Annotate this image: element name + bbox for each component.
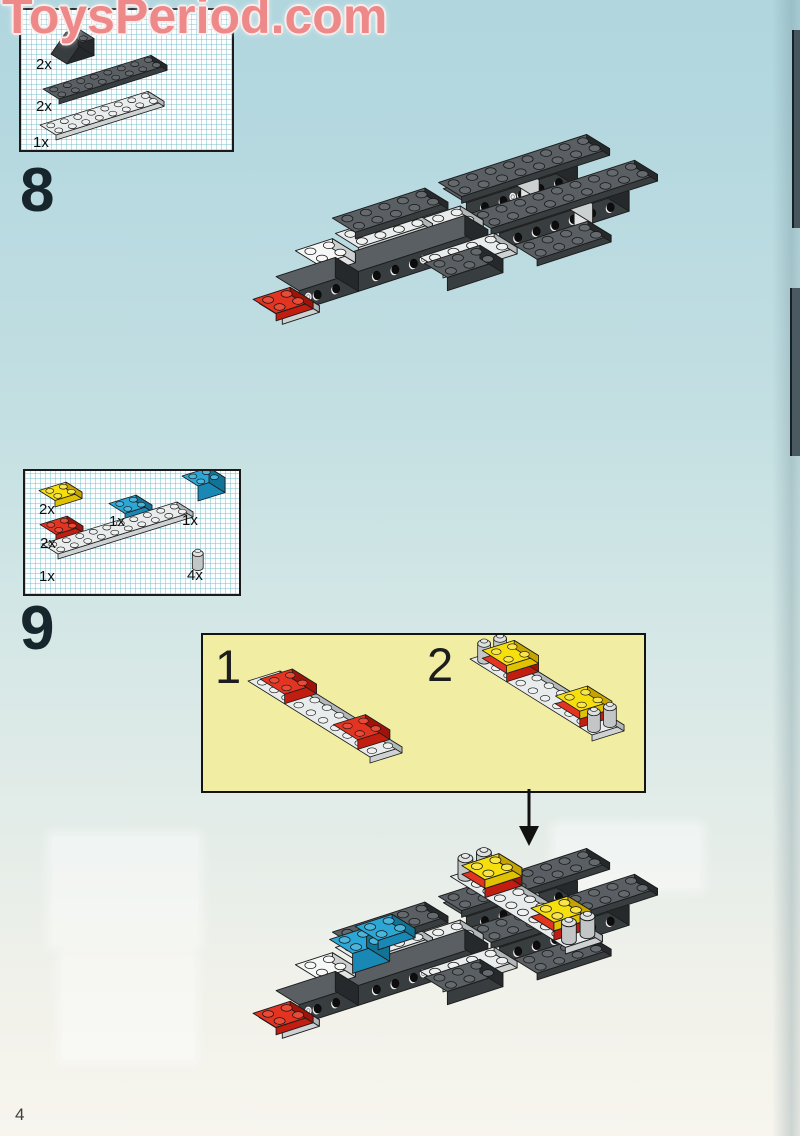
step-9-number: 9 (20, 598, 54, 660)
step8-assembly-illustration (228, 132, 708, 370)
instruction-page: 2x 2x 1x 8 2x 1x 1x 2x 1x 4x 9 1 2 ToysP… (0, 0, 800, 1136)
part-count-label: 4x (187, 568, 203, 583)
print-bleed-ghost (52, 836, 198, 946)
part-count-label: 1x (109, 514, 125, 529)
substep-assemblies-illustration (203, 635, 644, 791)
substep-2-label: 2 (427, 641, 453, 688)
part-count-label: 1x (33, 135, 49, 150)
adjacent-page-edge (790, 288, 800, 456)
adjacent-page-edge (792, 30, 800, 228)
step9-assembly-illustration (228, 816, 722, 1116)
part-count-label: 2x (36, 99, 52, 114)
substep-1-label: 1 (215, 643, 241, 690)
part-count-label: 2x (36, 57, 52, 72)
part-count-label: 1x (182, 513, 198, 528)
page-number: 4 (15, 1105, 24, 1125)
part-count-label: 2x (39, 502, 55, 517)
step9-parts-illustration (25, 471, 239, 594)
part-count-label: 1x (39, 569, 55, 584)
parts-box-step9: 2x 1x 1x 2x 1x 4x (23, 469, 241, 596)
substep-panel: 1 2 (201, 633, 646, 793)
part-count-label: 2x (40, 536, 56, 551)
print-bleed-ghost (62, 956, 194, 1060)
step-8-number: 8 (20, 160, 54, 222)
watermark-text: ToysPeriod.com (2, 0, 387, 45)
